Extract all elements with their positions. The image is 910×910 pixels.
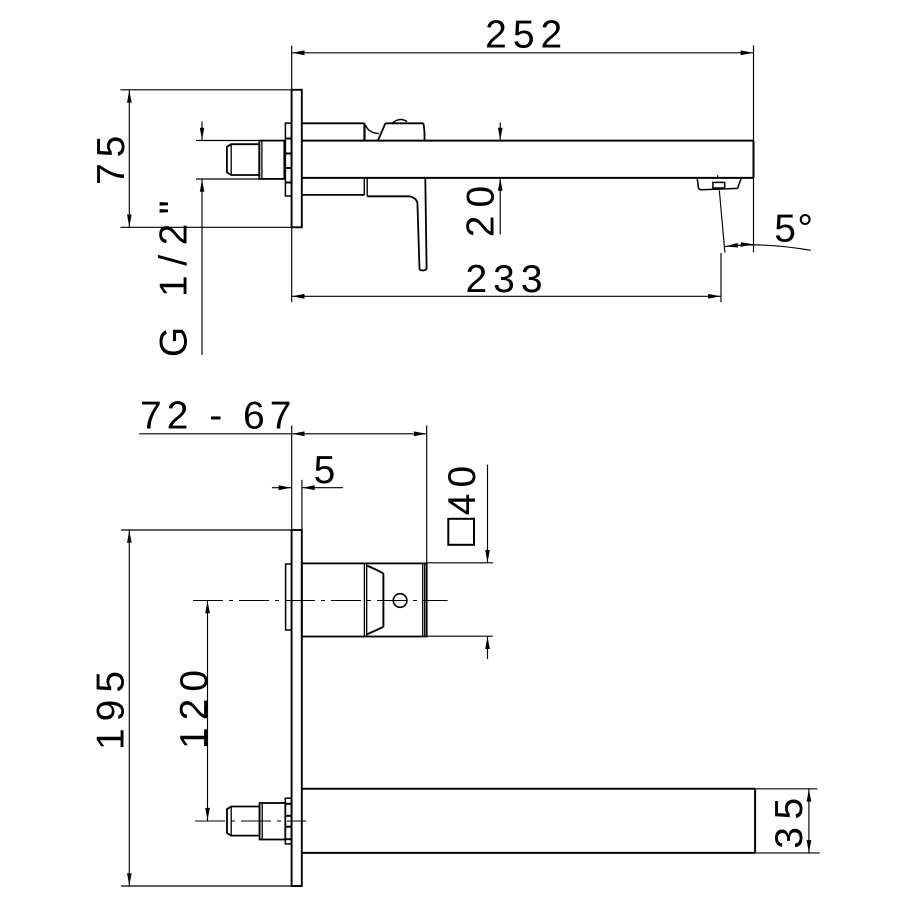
svg-text:195: 195: [90, 664, 133, 750]
svg-text:233: 233: [465, 258, 548, 301]
svg-text:G 1/2": G 1/2": [153, 191, 196, 357]
svg-text:120: 120: [173, 663, 216, 749]
svg-text:5°: 5°: [774, 208, 814, 251]
svg-text:5: 5: [314, 449, 336, 492]
svg-text:72 - 67: 72 - 67: [140, 394, 296, 437]
svg-text:35: 35: [768, 790, 811, 848]
svg-text:75: 75: [90, 130, 133, 185]
svg-text:20: 20: [460, 178, 503, 237]
svg-text:40: 40: [441, 460, 484, 515]
svg-text:252: 252: [485, 14, 568, 57]
